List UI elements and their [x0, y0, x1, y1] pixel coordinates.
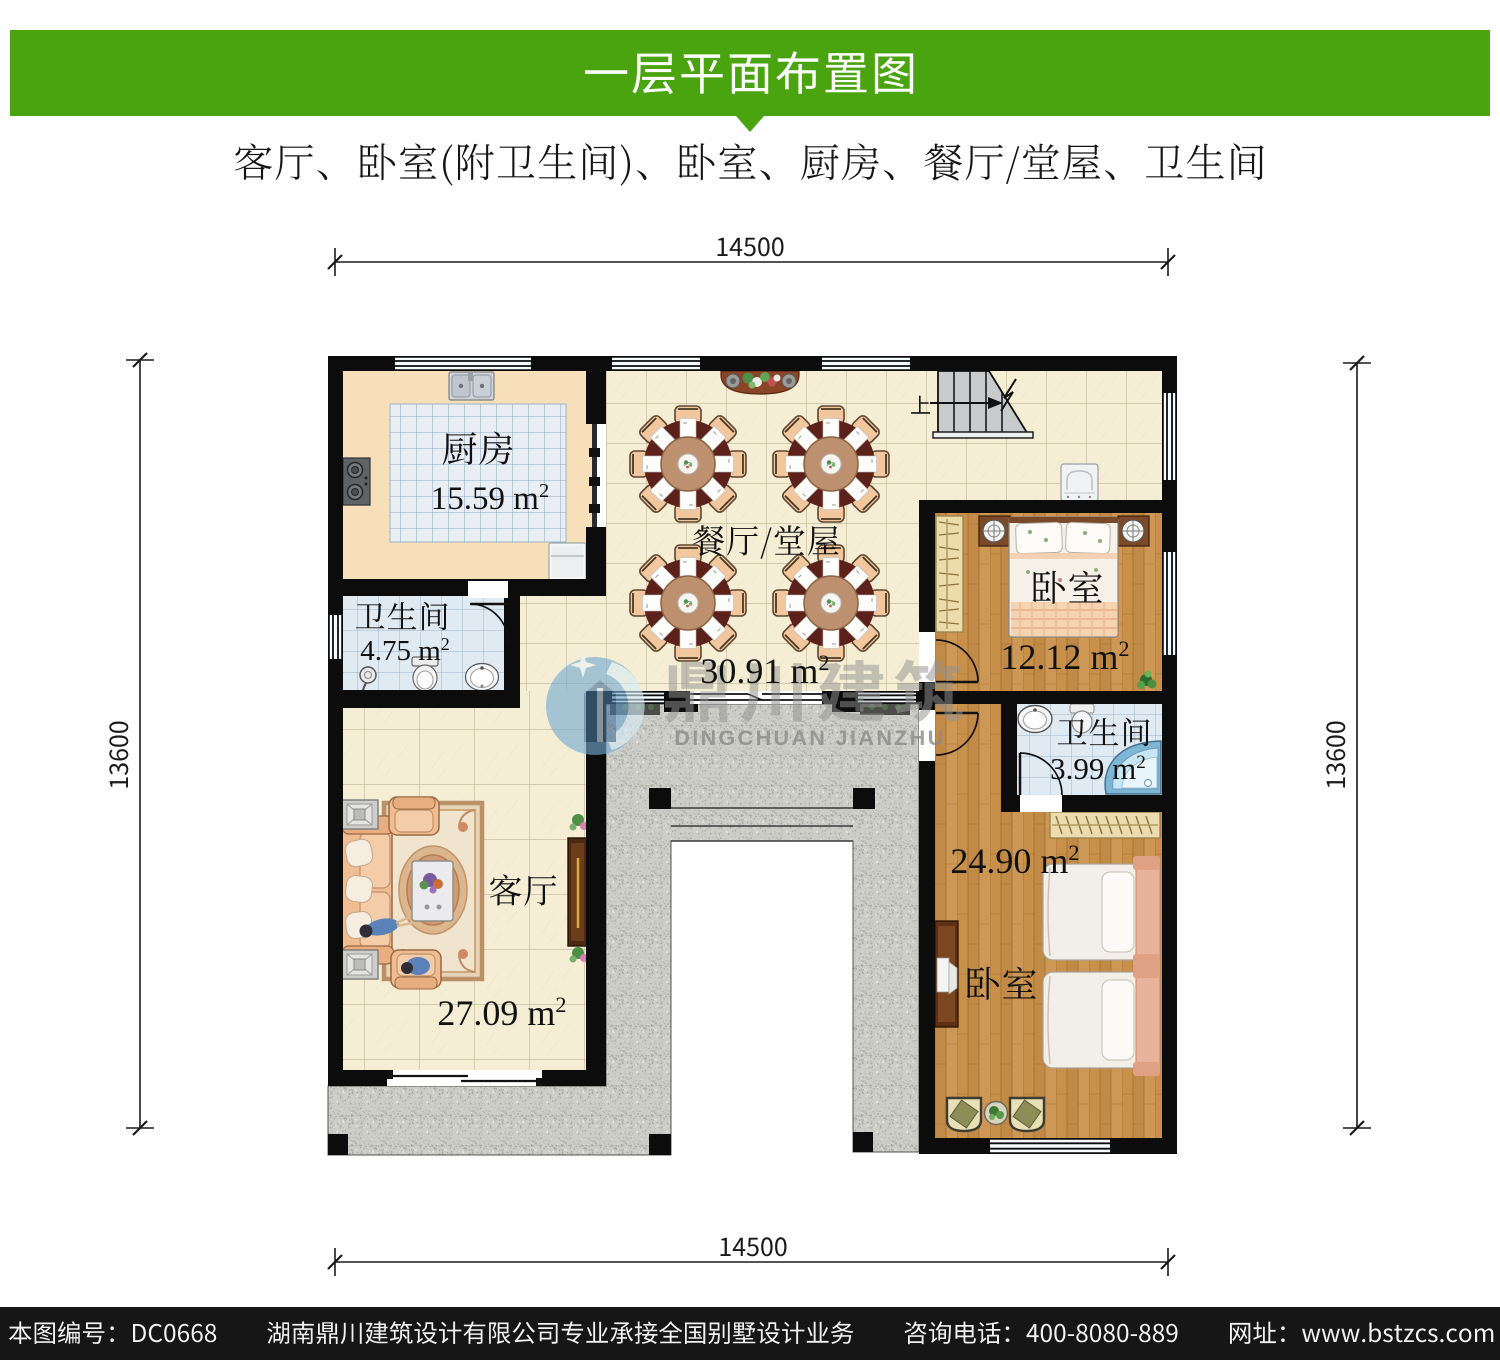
svg-text:4.75 m2: 4.75 m2 — [360, 634, 450, 667]
svg-text:27.09 m2: 27.09 m2 — [437, 992, 566, 1033]
svg-text:12.12 m2: 12.12 m2 — [1000, 636, 1129, 677]
svg-text:15.59 m2: 15.59 m2 — [431, 480, 549, 517]
svg-text:3.99 m2: 3.99 m2 — [1050, 751, 1146, 786]
svg-text:DINGCHUAN JIANZHU: DINGCHUAN JIANZHU — [674, 726, 945, 750]
svg-text:30.91 m2: 30.91 m2 — [700, 650, 829, 691]
svg-text:24.90 m2: 24.90 m2 — [950, 840, 1079, 881]
